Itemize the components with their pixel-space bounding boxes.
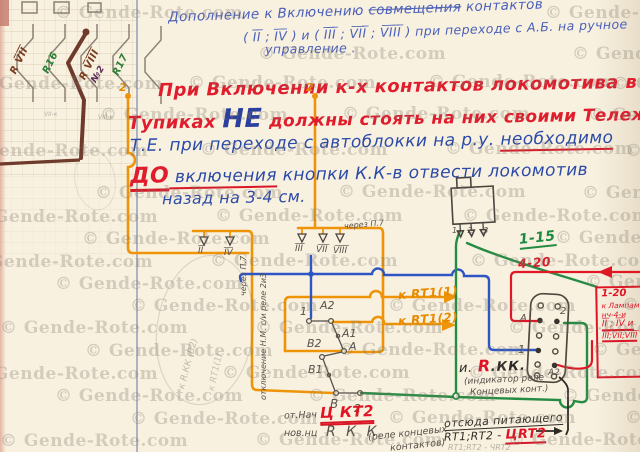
red-note-box: 1-20 к Лампам нч-4-и I̅I̅ ; I̅V̅ и I̅I̅I… [595, 286, 640, 379]
feed-rt1rt2: RT1;RT2 - [444, 429, 506, 444]
rkk-r: R [478, 356, 491, 375]
terminal-2-left: 2 [119, 82, 127, 94]
vertical-note-otkl: отключение Н.М. с/и реле 2и3 [260, 273, 268, 400]
graph-grid [0, 0, 137, 175]
limit-box-terminals: 1 2 3 [452, 227, 492, 235]
margin-rule-line [136, 0, 138, 452]
note-line1: При Включении к-х контактов локомотива в [158, 74, 637, 101]
pin-label-2: 2 [560, 307, 566, 318]
header-line1-b: контактов [461, 0, 543, 15]
contact-vii: V̅I̅I̅ [316, 246, 327, 255]
label-1-15: 1-15 [518, 229, 556, 249]
vertical-note-p7: через П.7 [240, 256, 248, 296]
note-do: ДО [130, 163, 170, 192]
note-line4: ДО включения кнопки К.К-в отвести локомо… [130, 157, 588, 188]
note-u-kt2: Ц КТ2 [320, 404, 375, 426]
pin-label-a2: A2 [548, 369, 560, 378]
contact-iii: I̅I̅I̅ [295, 245, 303, 254]
redbox-line4-text: I̅I̅ ; I̅V̅ и [602, 319, 634, 332]
note-tupikah: Тупиках [128, 112, 216, 135]
note-u-kt2-text: Ц КТ2 [320, 402, 375, 424]
green-junction [453, 393, 459, 399]
red-a2-wire [558, 341, 592, 369]
relay-label-a2: A2 [320, 300, 335, 312]
feed-note-line2: RT1;RT2 - ЦRT2 [444, 427, 547, 444]
note-ne: НЕ [222, 104, 263, 135]
watermark: © Gende-Rote.com [0, 318, 188, 338]
relay-label-1: 1 [300, 306, 307, 318]
contact-iv: I̅V̅ [224, 249, 233, 258]
note-cherez-p7: через П.7 [344, 219, 385, 231]
blue-junction [308, 271, 314, 277]
relay-label-b1: B1 [308, 364, 323, 376]
note-vklyucheniya: включения [169, 165, 277, 189]
header-line1-a: Дополнение к Включению [168, 3, 369, 26]
rkk-kk: .КК. [490, 359, 526, 375]
redbox-line4: I̅I̅ ; I̅V̅ и [602, 319, 640, 331]
faint-note-2: к RТ1(1) [208, 352, 225, 392]
pin-label-a: A [520, 314, 527, 325]
page-left-edge [0, 0, 6, 452]
relay-label-b2: B2 [307, 338, 322, 350]
faint-note-1: к R.КК (В2) [178, 338, 201, 391]
note-nov: нов.нц [284, 429, 317, 439]
contact-triangles [200, 234, 344, 245]
watermark: © Gende-Rote.com [130, 296, 318, 316]
feed-note-faint: RТ1;RТ2 - ЧRТ2 [448, 444, 511, 452]
terminal-2-right: 2 [306, 82, 314, 94]
watermark: © Gende-Rote.com [85, 341, 273, 361]
rkk-title: и. R.КК. [459, 357, 526, 376]
pencil-note-vii: VII-к [44, 112, 57, 118]
note-ot-nach: от.Нач [284, 410, 317, 421]
contact-viii: V̅I̅I̅I̅ [333, 247, 347, 256]
label-k-rt1-1: к RT1(1) [398, 285, 459, 302]
rkk-i: и. [459, 361, 473, 376]
note-line4-rest: кнопки К.К-в отвести локомотив [277, 160, 588, 185]
corner-mark [0, 0, 9, 26]
notebook-page: Дополнение к Включению совмещения контак… [0, 0, 640, 452]
watermark: © Gende-Rote.com [338, 182, 526, 202]
header-line3: управление . [265, 41, 356, 56]
relay-label-a: A [349, 341, 357, 353]
blue-wire [240, 256, 536, 350]
watermark: © Gende-Rote.com [55, 274, 243, 294]
rkk-indicator-2: Концевых конт.) [470, 385, 549, 399]
relay-label-a1: A1 [342, 328, 357, 340]
note-line5: назад на 3-4 см. [162, 189, 306, 208]
feed-urt2: ЦRT2 [505, 426, 547, 444]
redbox-line2: к Лампам [601, 300, 640, 310]
note-neobhodimo: необходимо [500, 128, 613, 152]
label-k-rt1-2: к RT1(2) [398, 311, 459, 328]
pin-label-1: 1 [518, 344, 525, 356]
watermark: © Gende-Rote.com [0, 364, 158, 384]
header-line1-strike: совмещения [368, 0, 461, 19]
arrow-feed [554, 427, 563, 435]
redbox-line1: 1-20 [601, 288, 640, 301]
note-rele-2: контактов) [390, 438, 446, 452]
label-4-20: 4-20 [518, 255, 552, 270]
redbox-line5-text: I̅I̅I̅;V̅I̅I̅;V̅I̅I̅I̅ [602, 330, 637, 342]
page-right-shadow [595, 0, 640, 452]
watermark: © Gende-Rote.com [0, 431, 188, 451]
redbox-line5: I̅I̅I̅;V̅I̅I̅;V̅I̅I̅I̅ [602, 330, 640, 341]
pencil-note-viii: VIII-к [98, 115, 113, 121]
graph-grid-faded [0, 175, 137, 265]
contact-ii: I̅I̅ [198, 247, 203, 256]
header-line2: ( I̅I̅ ; I̅V̅ ) и ( I̅I̅I̅ ; V̅I̅I̅ ; V̅… [243, 17, 628, 44]
